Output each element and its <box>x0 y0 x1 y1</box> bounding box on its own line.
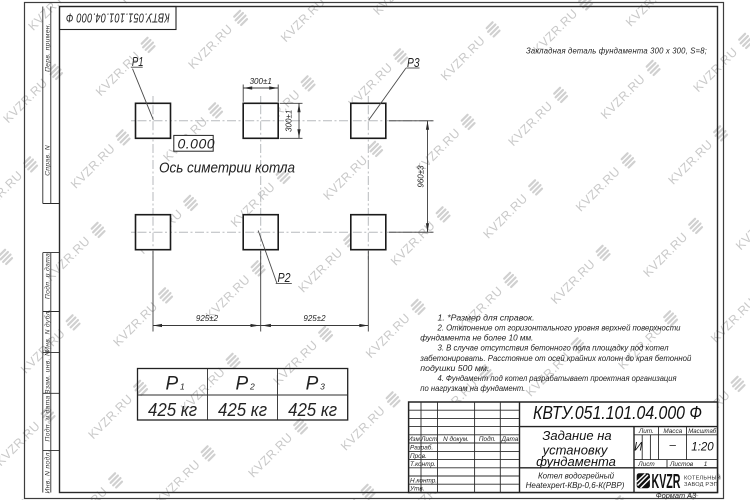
svg-text:925±2: 925±2 <box>196 314 219 323</box>
svg-text:425 кг: 425 кг <box>218 400 267 420</box>
svg-text:Котел водогрейный: Котел водогрейный <box>538 472 615 481</box>
svg-text:Лист: Лист <box>420 436 438 443</box>
svg-text:Ось симетрии котла: Ось симетрии котла <box>159 161 295 177</box>
svg-text:КВТУ.051.101.04.000 Ф: КВТУ.051.101.04.000 Ф <box>533 402 702 423</box>
svg-text:Р2: Р2 <box>278 270 292 285</box>
svg-text:по нагрузкам на фундамент.: по нагрузкам на фундамент. <box>420 383 525 393</box>
svg-text:И: И <box>634 442 643 454</box>
svg-text:Подп. и дата: Подп. и дата <box>44 395 52 441</box>
svg-text:–: – <box>668 440 676 452</box>
svg-text:Дата: Дата <box>500 436 518 443</box>
svg-text:Задание на: Задание на <box>542 428 611 443</box>
svg-text:2: 2 <box>249 382 255 392</box>
svg-text:Масса: Масса <box>663 428 682 435</box>
svg-text:КВТУ.051.101.04.000 Ф: КВТУ.051.101.04.000 Ф <box>66 11 170 26</box>
svg-text:Р3: Р3 <box>407 55 420 70</box>
svg-text:Перв. примен.: Перв. примен. <box>45 23 52 72</box>
svg-text:Справ. N: Справ. N <box>45 145 52 176</box>
svg-text:1: 1 <box>180 382 185 392</box>
svg-text:925±2: 925±2 <box>303 314 326 323</box>
svg-text:300±1: 300±1 <box>250 77 272 86</box>
svg-text:Формат А3: Формат А3 <box>656 491 697 500</box>
svg-text:Р: Р <box>236 374 249 395</box>
svg-text:Разраб.: Разраб. <box>410 444 433 452</box>
svg-text:KVZR: KVZR <box>652 471 681 493</box>
svg-text:Р: Р <box>166 374 179 395</box>
svg-text:2. Отклонение от горизонтальн: 2. Отклонение от горизонтального уровня … <box>437 322 681 332</box>
svg-text:0.000: 0.000 <box>178 135 216 151</box>
svg-text:300±1: 300±1 <box>285 110 294 132</box>
svg-text:Утв.: Утв. <box>409 486 425 493</box>
svg-text:Р1: Р1 <box>132 54 144 69</box>
svg-text:3: 3 <box>320 382 325 392</box>
svg-text:3. В случае отсутствия бетонн: 3. В случае отсутствия бетонного пола пл… <box>438 343 669 353</box>
svg-text:Инв. N дубл.: Инв. N дубл. <box>44 309 52 352</box>
svg-text:Масштаб: Масштаб <box>688 427 716 435</box>
svg-text:подушки 500 мм.: подушки 500 мм. <box>420 363 489 373</box>
svg-text:1:20: 1:20 <box>691 442 714 454</box>
svg-text:Закладная деталь фундамента 3: Закладная деталь фундамента 300 х 300, S… <box>526 46 707 56</box>
svg-text:Листов: Листов <box>669 461 694 468</box>
svg-text:425 кг: 425 кг <box>288 400 337 420</box>
svg-text:1. *Размер для справок.: 1. *Размер для справок. <box>438 312 535 322</box>
svg-text:Подп.: Подп. <box>479 435 496 443</box>
svg-text:КОТЕЛЬНЫЙ: КОТЕЛЬНЫЙ <box>684 473 721 481</box>
svg-text:Т.контр.: Т.контр. <box>410 461 436 468</box>
svg-text:1: 1 <box>704 461 708 468</box>
svg-text:Пров.: Пров. <box>410 453 427 460</box>
svg-text:Р: Р <box>306 374 319 395</box>
svg-text:Н.контр.: Н.контр. <box>410 477 437 484</box>
svg-text:Лит.: Лит. <box>638 428 654 435</box>
svg-text:N докум.: N докум. <box>443 435 469 443</box>
svg-text:фундамента не более 10 мм.: фундамента не более 10 мм. <box>420 333 533 343</box>
svg-text:425 кг: 425 кг <box>148 400 197 420</box>
svg-text:ЗАВОД РЭП: ЗАВОД РЭП <box>684 482 718 488</box>
svg-text:Изм.: Изм. <box>408 436 422 443</box>
svg-text:фундамента: фундамента <box>536 454 616 469</box>
svg-text:забетонировать. Расстояние от: забетонировать. Расстояние от осей крайн… <box>419 353 691 363</box>
svg-text:Лист: Лист <box>637 461 655 468</box>
svg-text:960±3: 960±3 <box>417 165 426 188</box>
svg-text:Взам. инв. N: Взам. инв. N <box>45 351 52 394</box>
svg-text:Подп. и дата: Подп. и дата <box>44 253 52 299</box>
svg-text:4. Фундамент под котел разраб: 4. Фундамент под котел разрабатывает про… <box>438 373 677 383</box>
svg-text:Heatexpert-КВр-0,6-К(РВР): Heatexpert-КВр-0,6-К(РВР) <box>526 481 625 490</box>
svg-text:Инв. N подл.: Инв. N подл. <box>44 450 52 493</box>
